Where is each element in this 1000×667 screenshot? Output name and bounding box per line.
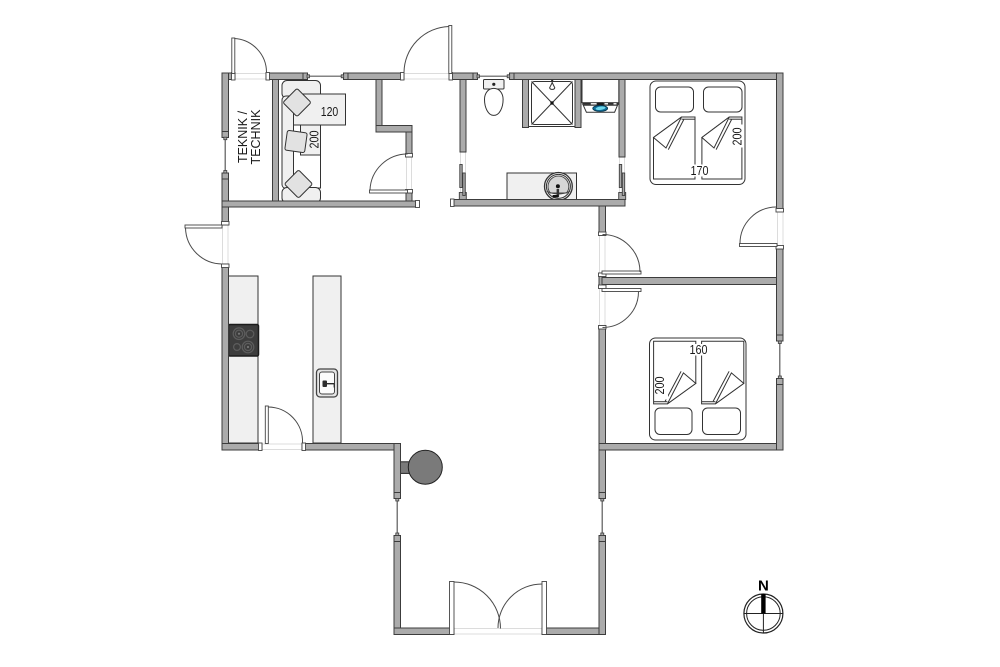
svg-text:200: 200 (730, 128, 745, 146)
svg-text:170: 170 (691, 163, 709, 178)
svg-text:TEKNIK /: TEKNIK / (236, 110, 250, 163)
svg-text:N: N (758, 578, 769, 595)
svg-text:200: 200 (652, 377, 667, 395)
svg-text:TECHNIK: TECHNIK (249, 109, 263, 165)
svg-text:200: 200 (307, 131, 322, 149)
svg-text:120: 120 (321, 104, 339, 119)
svg-text:160: 160 (690, 342, 708, 357)
